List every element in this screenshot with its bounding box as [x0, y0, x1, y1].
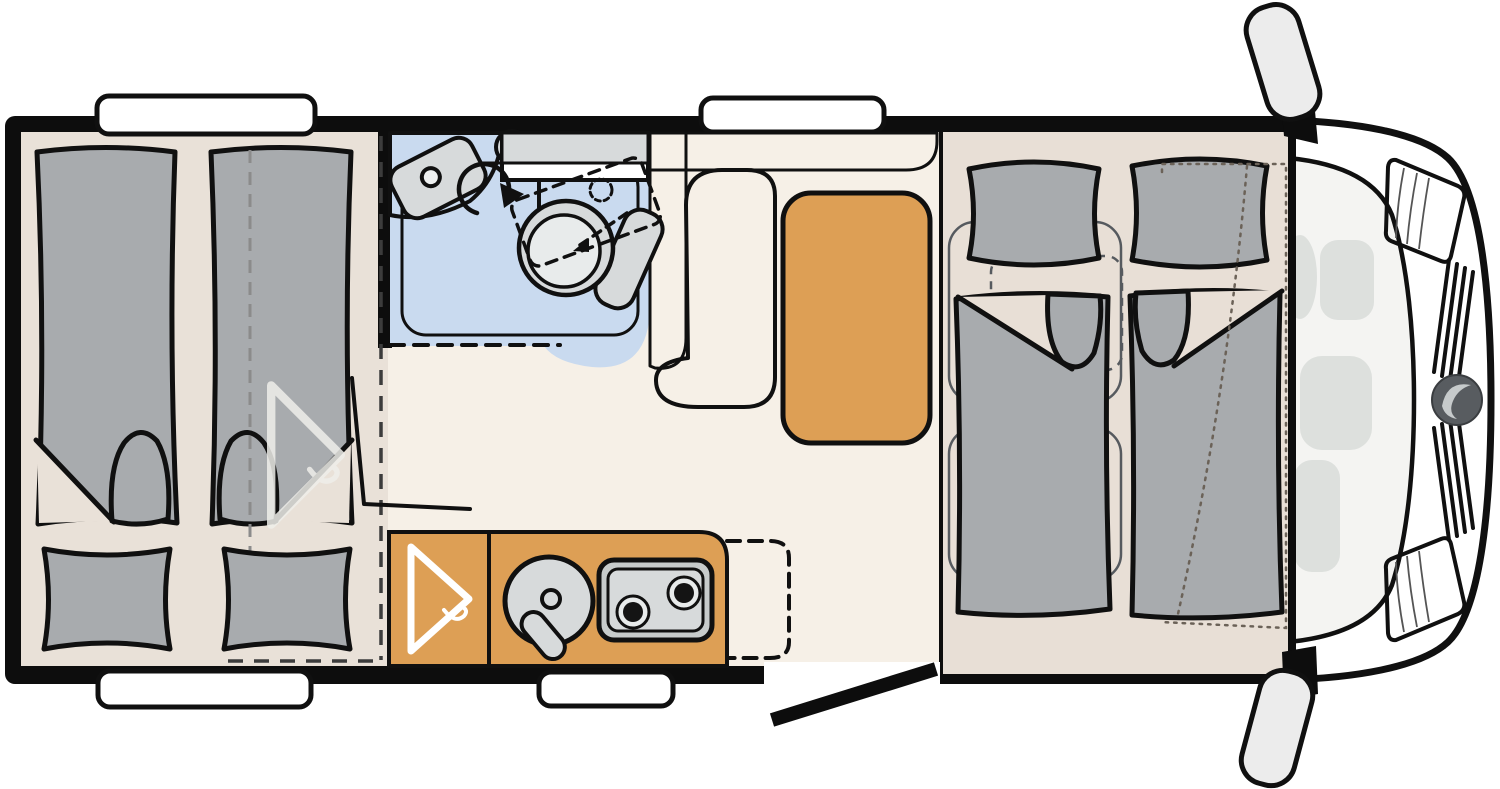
burner-right [674, 583, 694, 603]
window-rear-bottom [98, 671, 311, 707]
floorplan-page [0, 0, 1500, 789]
front-bed-right-blanket [1135, 291, 1188, 365]
cab [1283, 120, 1491, 680]
lounge-table [783, 193, 930, 443]
dashboard-console [1300, 356, 1372, 450]
bathroom [385, 131, 686, 368]
window-rear-top [97, 96, 315, 134]
window-kitchen-bottom [539, 672, 673, 706]
platform-edge-line [939, 132, 943, 674]
two-burner-hob [599, 560, 712, 640]
passenger-seat [1294, 460, 1340, 572]
mirror-top [1240, 0, 1326, 125]
entry-door [764, 662, 940, 720]
rear-pillow-left [44, 549, 170, 649]
driver-seat [1320, 240, 1374, 320]
burner-left [623, 602, 643, 622]
front-pillow-left [969, 162, 1099, 265]
motorhome-floorplan [0, 0, 1500, 789]
window-mid-top [701, 98, 884, 132]
rear-pillow-right [224, 549, 350, 649]
wardrobe [389, 532, 489, 666]
rear-bed-left-blanket [111, 432, 169, 524]
brand-logo-icon [1432, 375, 1482, 425]
